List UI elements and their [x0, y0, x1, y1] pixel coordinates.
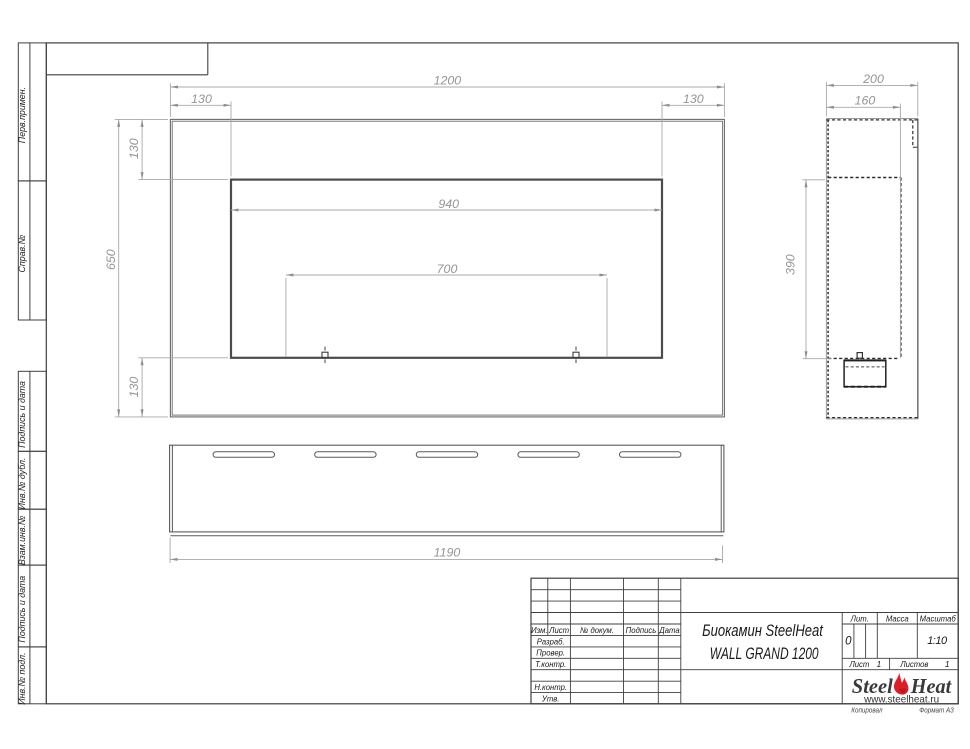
- svg-text:Разраб.: Разраб.: [537, 637, 565, 646]
- svg-text:1200: 1200: [434, 74, 462, 88]
- svg-text:№ докум.: № докум.: [580, 626, 614, 635]
- svg-text:Т.контр.: Т.контр.: [535, 660, 566, 669]
- svg-text:130: 130: [683, 92, 704, 106]
- svg-text:Перв.примен.: Перв.примен.: [17, 87, 27, 143]
- svg-text:Лист: Лист: [849, 660, 870, 669]
- svg-text:Лист: Лист: [548, 626, 569, 635]
- svg-text:www.steelheat.ru: www.steelheat.ru: [863, 694, 939, 705]
- svg-text:Справ.№: Справ.№: [17, 235, 27, 273]
- svg-text:390: 390: [784, 254, 798, 275]
- svg-text:Инв.№ подл.: Инв.№ подл.: [17, 652, 27, 704]
- svg-text:1: 1: [945, 659, 950, 669]
- svg-text:1190: 1190: [434, 545, 461, 559]
- svg-text:Изм.: Изм.: [531, 626, 547, 635]
- svg-text:Взам.инв.№: Взам.инв.№: [17, 515, 27, 565]
- svg-text:Формат А3: Формат А3: [919, 707, 954, 714]
- svg-text:700: 700: [437, 262, 458, 276]
- svg-text:130: 130: [127, 138, 141, 159]
- svg-text:WALL GRAND 1200: WALL GRAND 1200: [710, 644, 819, 663]
- svg-text:Провер.: Провер.: [536, 648, 565, 657]
- svg-text:Масштаб: Масштаб: [920, 614, 957, 623]
- svg-text:130: 130: [127, 377, 141, 398]
- svg-text:Подпись: Подпись: [626, 626, 657, 635]
- svg-text:Дата: Дата: [658, 626, 680, 635]
- svg-text:650: 650: [104, 249, 118, 270]
- svg-text:Масса: Масса: [886, 614, 909, 623]
- svg-text:200: 200: [862, 72, 884, 86]
- svg-text:1: 1: [877, 659, 882, 669]
- svg-text:940: 940: [438, 197, 459, 211]
- svg-text:Подпись и дата: Подпись и дата: [17, 576, 27, 643]
- svg-text:Утв.: Утв.: [541, 694, 560, 703]
- svg-text:0: 0: [845, 636, 852, 648]
- svg-text:Н.контр.: Н.контр.: [534, 683, 567, 692]
- svg-text:Лит.: Лит.: [850, 614, 869, 623]
- svg-text:130: 130: [191, 92, 212, 106]
- svg-text:Инв.№ дубл.: Инв.№ дубл.: [17, 458, 27, 510]
- svg-text:Подпись и дата: Подпись и дата: [17, 381, 27, 448]
- svg-text:1:10: 1:10: [927, 635, 948, 647]
- svg-text:Копировал: Копировал: [851, 707, 882, 714]
- svg-text:Биокамин SteelHeat: Биокамин SteelHeat: [702, 621, 824, 640]
- svg-text:Листов: Листов: [899, 660, 928, 669]
- svg-text:160: 160: [855, 94, 876, 108]
